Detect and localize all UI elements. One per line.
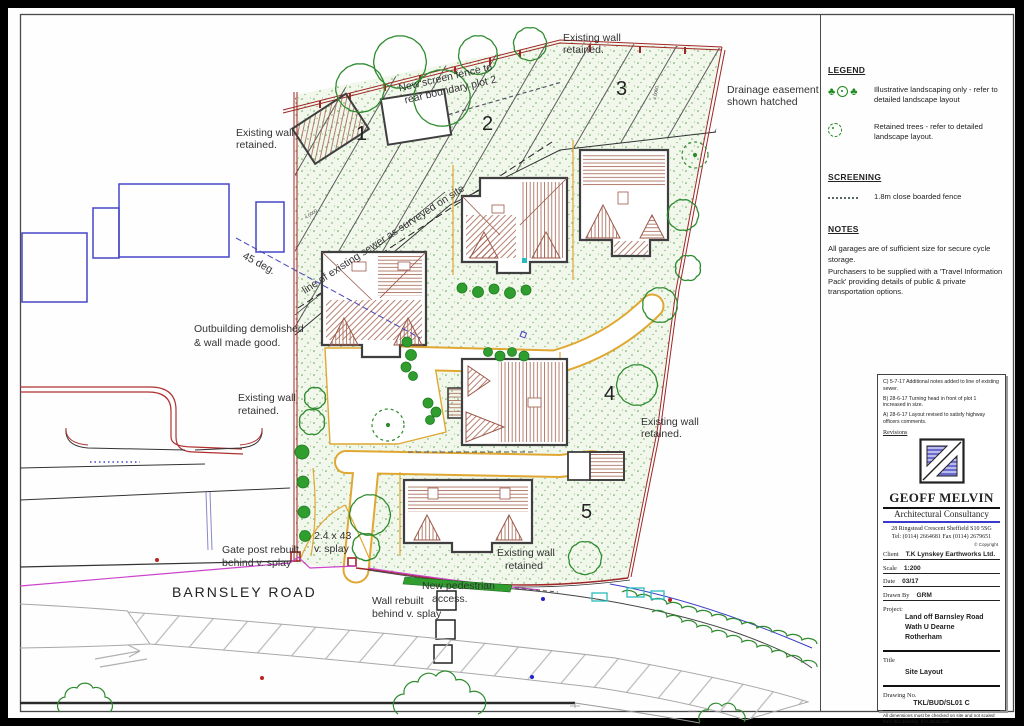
legend-item-landscaping: ♣ ♣ Illustrative landscaping only - refe… bbox=[828, 85, 1012, 106]
svg-text:behind v. splay: behind v. splay bbox=[222, 557, 292, 569]
drawing-title: Site Layout bbox=[905, 668, 1000, 678]
title-label: Title bbox=[883, 657, 1000, 664]
svg-text:retained.: retained. bbox=[641, 428, 682, 440]
illustrative-landscaping-icon: ♣ bbox=[850, 87, 857, 97]
note-text: Purchasers to be supplied with a 'Travel… bbox=[828, 267, 1008, 298]
legend-heading: LEGEND bbox=[828, 65, 1012, 75]
svg-text:behind v. splay: behind v. splay bbox=[372, 608, 442, 620]
label-wall-rebuilt: Wall rebuilt bbox=[372, 595, 424, 607]
barnsley-road bbox=[20, 557, 817, 723]
retained-tree-icon bbox=[828, 123, 842, 137]
tree-circle-icon bbox=[837, 86, 848, 97]
plot4-house bbox=[448, 359, 567, 445]
label-existing-wall-midleft: Existing wall bbox=[238, 392, 296, 404]
plot-number-1: 1 bbox=[356, 123, 367, 145]
disclaimer: All dimensions must be checked on site a… bbox=[883, 713, 1000, 725]
plot-number-3: 3 bbox=[616, 78, 627, 100]
divider bbox=[883, 685, 1000, 687]
label-existing-wall-top: Existing wall bbox=[563, 32, 621, 44]
label-gate-post: Gate post rebuilt bbox=[222, 544, 299, 556]
divider bbox=[883, 650, 1000, 652]
project-line: Wath U Dearne bbox=[905, 623, 1000, 633]
revision-note: A) 28-6-17 Layout revised to satisfy hig… bbox=[883, 412, 1000, 426]
legend-item-retained-trees: Retained trees - refer to detailed lands… bbox=[828, 122, 1012, 143]
svg-text:retained.: retained. bbox=[236, 139, 277, 151]
note-text: All garages are of sufficient size for s… bbox=[828, 244, 1008, 265]
firm-phone: Tel: (0114) 2664681 Fax (0114) 2679651 bbox=[883, 533, 1000, 541]
label-45-deg: 45 deg. bbox=[241, 250, 278, 277]
scale-value: 1:200 bbox=[904, 565, 921, 572]
svg-text:retained.: retained. bbox=[563, 44, 604, 56]
project-line: Rotherham bbox=[905, 633, 1000, 643]
illustrative-landscaping-icon: ♣ bbox=[828, 87, 835, 97]
plot3-house bbox=[580, 150, 668, 256]
svg-text:& wall made good.: & wall made good. bbox=[194, 337, 280, 349]
drawn-by-row: Drawn By GRM bbox=[883, 592, 1000, 601]
firm-name: GEOFF MELVIN bbox=[883, 490, 1000, 509]
title-block: C) 5-7-17 Additional notes added to line… bbox=[877, 374, 1006, 711]
revision-note: C) 5-7-17 Additional notes added to line… bbox=[883, 379, 1000, 393]
label-road-name: BARNSLEY ROAD bbox=[172, 584, 317, 600]
client-row: Client T.K Lynskey Earthworks Ltd. bbox=[883, 551, 1000, 560]
plot-number-5: 5 bbox=[581, 501, 592, 523]
revision-note: B) 28-6-17 Turning head in front of plot… bbox=[883, 396, 1000, 410]
date-value: 03/17 bbox=[902, 578, 919, 585]
plot-number-2: 2 bbox=[482, 113, 493, 135]
label-pedestrian-access: New pedestrian bbox=[422, 580, 495, 592]
revisions-label: Revisions bbox=[883, 429, 1000, 436]
label-existing-wall-plot4: Existing wall bbox=[641, 416, 699, 428]
svg-text:retained: retained bbox=[505, 560, 543, 572]
plot5-house bbox=[404, 480, 532, 552]
client-value: T.K Lynskey Earthworks Ltd. bbox=[906, 551, 996, 558]
firm-subtitle: Architectural Consultancy bbox=[883, 509, 1000, 523]
plot-number-4: 4 bbox=[604, 383, 615, 405]
blue-boundary-line bbox=[610, 584, 812, 648]
project-line: Land off Barnsley Road bbox=[905, 613, 1000, 623]
legend-item-fence: 1.8m close boarded fence bbox=[828, 192, 1012, 202]
firm-address: 28 Ringstead Crescent Sheffield S10 5SG bbox=[883, 525, 1000, 533]
label-visibility-splay: 2.4 x 43 bbox=[314, 530, 352, 542]
label-outbuilding: Outbuilding demolished bbox=[194, 323, 304, 335]
plot4-garage bbox=[568, 452, 624, 480]
label-existing-wall-plot5: Existing wall bbox=[497, 547, 555, 559]
date-row: Date 03/17 bbox=[883, 578, 1000, 587]
svg-text:shown hatched: shown hatched bbox=[727, 96, 798, 108]
svg-text:access.: access. bbox=[432, 593, 468, 605]
svg-text:retained.: retained. bbox=[238, 405, 279, 417]
label-existing-wall-left: Existing wall bbox=[236, 127, 294, 139]
fence-dash-icon bbox=[828, 197, 858, 199]
drawing-no-label: Drawing No. bbox=[883, 692, 1000, 699]
drawing-no-value: TKL/BUD/SL01 C bbox=[883, 699, 1000, 711]
drawing-sheet: Existing wall retained. Drainage easemen… bbox=[0, 0, 1024, 726]
copyright-mark: © Copyright bbox=[883, 542, 998, 547]
screening-heading: SCREENING bbox=[828, 172, 1012, 182]
scale-row: Scale 1:200 bbox=[883, 565, 1000, 574]
road-arrow bbox=[95, 645, 147, 667]
company-logo bbox=[883, 438, 1000, 489]
notes-heading: NOTES bbox=[828, 224, 1012, 234]
label-drainage-easement: Drainage easement bbox=[727, 84, 819, 96]
drawn-by-value: GRM bbox=[916, 592, 931, 599]
project-label: Project: bbox=[883, 606, 1000, 613]
svg-text:v. splay: v. splay bbox=[314, 543, 350, 555]
